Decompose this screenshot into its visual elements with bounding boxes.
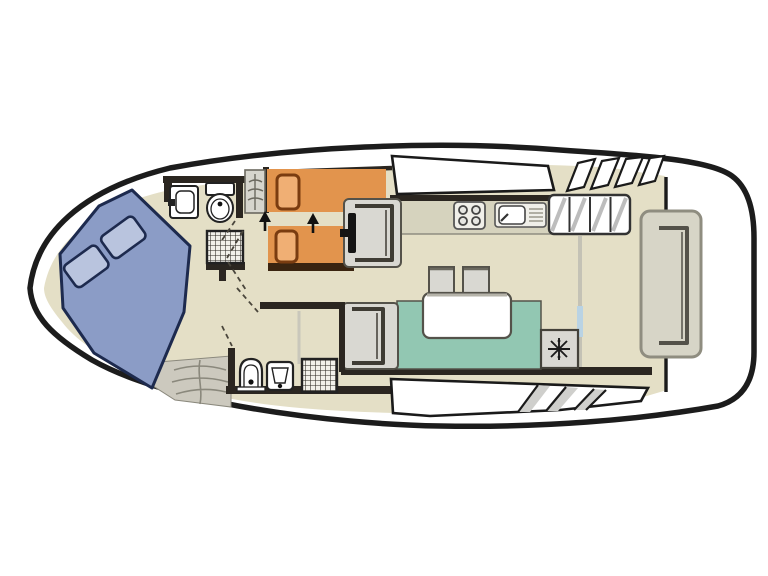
toilet-icon [206, 183, 234, 222]
bed-shadow [268, 263, 354, 271]
aft-bulkhead-window [549, 195, 630, 234]
dinette-table [423, 293, 511, 338]
helm [340, 199, 401, 267]
stool [429, 267, 454, 293]
saloon-top-wall [390, 195, 556, 201]
sink-icon [267, 362, 293, 390]
upper-steps [245, 170, 265, 213]
sink-icon [495, 203, 546, 227]
shower-hatch-icon [302, 359, 337, 392]
stove-burners-icon [454, 202, 485, 229]
sink-tap [168, 199, 175, 206]
fridge [541, 330, 578, 368]
snowflake-icon [548, 338, 570, 360]
sink-basin [176, 191, 194, 213]
stern-bench [641, 211, 701, 357]
shower-hatch-icon [207, 231, 243, 263]
boat-floor-plan [0, 0, 768, 576]
stool [463, 267, 489, 293]
navigator-seat [343, 303, 398, 369]
toilet-icon [237, 359, 265, 391]
bed-pillow [277, 175, 299, 209]
galley [390, 195, 556, 234]
bed-pillow [276, 231, 297, 262]
